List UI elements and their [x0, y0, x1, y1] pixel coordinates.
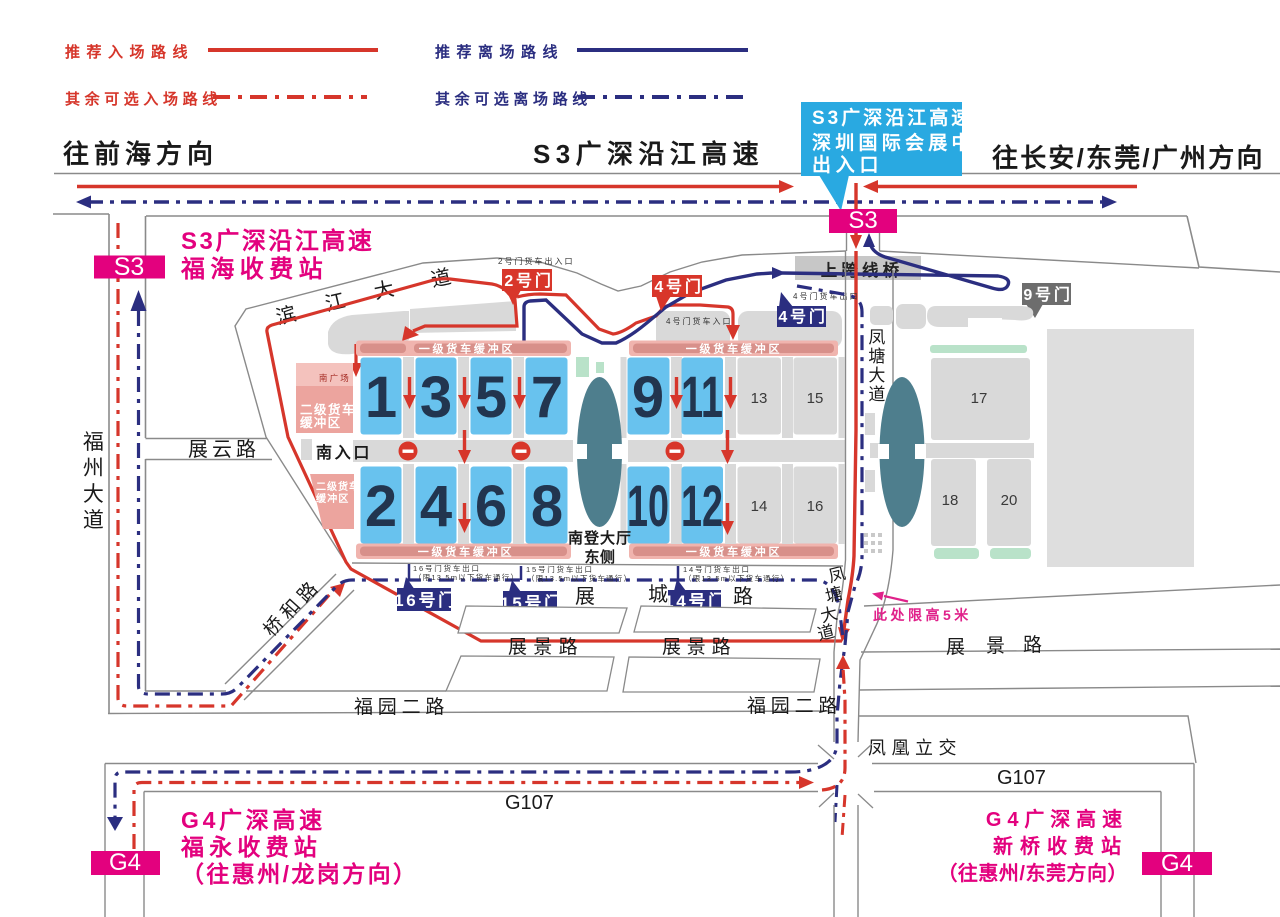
svg-text:凤凰立交: 凤凰立交 [868, 738, 962, 758]
svg-text:G107: G107 [997, 767, 1046, 789]
svg-text:缓冲区: 缓冲区 [300, 415, 341, 430]
svg-text:塘: 塘 [868, 347, 889, 366]
svg-text:G107: G107 [505, 792, 554, 814]
svg-text:路: 路 [733, 585, 758, 608]
svg-text:其余可选入场路线: 其余可选入场路线 [65, 90, 222, 108]
svg-text:（往惠州/东莞方向）: （往惠州/东莞方向） [937, 861, 1128, 885]
svg-text:东侧: 东侧 [584, 548, 615, 566]
svg-text:展景路: 展景路 [508, 636, 584, 658]
svg-text:（往惠州/龙岗方向）: （往惠州/龙岗方向） [181, 861, 418, 887]
svg-text:11: 11 [681, 365, 723, 430]
svg-text:展: 展 [575, 586, 600, 608]
svg-text:5: 5 [475, 365, 507, 430]
svg-text:一级货车缓冲区: 一级货车缓冲区 [419, 342, 516, 356]
svg-text:景: 景 [986, 636, 1010, 657]
svg-text:展景路: 展景路 [662, 636, 736, 658]
svg-text:出入口: 出入口 [812, 153, 883, 176]
svg-text:2: 2 [365, 474, 397, 539]
svg-text:S3: S3 [114, 253, 145, 281]
svg-text:4号门货车出口: 4号门货车出口 [793, 291, 859, 301]
svg-text:其余可选离场路线: 其余可选离场路线 [435, 90, 592, 108]
svg-text:往前海方向: 往前海方向 [63, 139, 218, 169]
svg-text:6: 6 [475, 474, 507, 539]
svg-text:4: 4 [420, 474, 452, 539]
svg-text:一级货车缓冲区: 一级货车缓冲区 [686, 342, 783, 356]
svg-text:G4广深高速: G4广深高速 [181, 807, 326, 833]
svg-text:S3: S3 [848, 207, 877, 234]
svg-text:8: 8 [531, 474, 563, 539]
svg-text:2号门货车出入口: 2号门货车出入口 [498, 256, 574, 266]
svg-text:15: 15 [807, 390, 824, 407]
svg-text:往长安/东莞/广州方向: 往长安/东莞/广州方向 [992, 143, 1265, 173]
svg-text:2号门: 2号门 [504, 271, 553, 290]
svg-text:20: 20 [1001, 492, 1018, 509]
svg-text:凤: 凤 [868, 328, 889, 347]
svg-text:福海收费站: 福海收费站 [180, 255, 328, 283]
svg-text:（限13.5m以下货车通行）: （限13.5m以下货车通行） [684, 573, 789, 583]
svg-text:南登大厅: 南登大厅 [568, 529, 632, 547]
svg-text:道: 道 [83, 509, 109, 532]
svg-text:12: 12 [681, 474, 723, 539]
svg-text:G4: G4 [109, 849, 141, 876]
svg-text:州: 州 [83, 457, 109, 480]
svg-text:推荐入场路线: 推荐入场路线 [65, 43, 194, 61]
svg-text:S3广深沿江高速: S3广深沿江高速 [812, 106, 973, 129]
svg-text:上跨线桥: 上跨线桥 [821, 260, 903, 280]
svg-text:9: 9 [632, 365, 664, 430]
svg-text:南广场: 南广场 [319, 373, 351, 383]
svg-text:18: 18 [942, 492, 959, 509]
svg-text:南入口: 南入口 [316, 443, 372, 462]
svg-text:大: 大 [83, 483, 109, 506]
svg-text:16: 16 [807, 498, 824, 515]
svg-text:17: 17 [971, 390, 988, 407]
svg-text:（限13.5m以下货车通行）: （限13.5m以下货车通行） [414, 572, 519, 582]
svg-text:展: 展 [946, 637, 970, 658]
svg-text:S3广深沿江高速: S3广深沿江高速 [181, 227, 374, 255]
svg-text:4号门货车入口: 4号门货车入口 [666, 316, 732, 326]
svg-text:福园二路: 福园二路 [354, 696, 449, 718]
svg-text:（限13.5m以下货车通行）: （限13.5m以下货车通行） [527, 573, 632, 583]
svg-text:二级货车: 二级货车 [300, 402, 356, 417]
svg-text:4号门: 4号门 [654, 277, 703, 296]
svg-text:展云路: 展云路 [188, 438, 260, 461]
svg-text:深圳国际会展中心: 深圳国际会展中心 [812, 131, 998, 154]
svg-text:10: 10 [627, 474, 669, 539]
svg-text:3: 3 [420, 365, 452, 430]
svg-text:新桥收费站: 新桥收费站 [993, 834, 1128, 858]
svg-text:7: 7 [531, 365, 563, 430]
svg-text:G4: G4 [1161, 850, 1193, 877]
svg-text:1: 1 [365, 365, 397, 430]
svg-text:大: 大 [868, 366, 889, 385]
svg-text:缓冲区: 缓冲区 [315, 492, 350, 505]
svg-text:9号门: 9号门 [1023, 285, 1072, 304]
svg-text:16号门: 16号门 [394, 590, 458, 610]
svg-text:此处限高5米: 此处限高5米 [873, 607, 972, 623]
svg-text:推荐离场路线: 推荐离场路线 [435, 43, 564, 61]
svg-text:S3广深沿江高速: S3广深沿江高速 [533, 139, 764, 169]
svg-text:14号门货车出口: 14号门货车出口 [683, 564, 751, 574]
svg-text:路: 路 [1023, 634, 1047, 656]
svg-text:福: 福 [83, 431, 109, 454]
svg-text:14: 14 [751, 498, 768, 515]
svg-text:城: 城 [648, 583, 673, 606]
svg-text:4号门: 4号门 [778, 307, 827, 326]
svg-text:福园二路: 福园二路 [747, 695, 842, 717]
svg-text:一级货车缓冲区: 一级货车缓冲区 [418, 545, 515, 559]
svg-text:福永收费站: 福永收费站 [180, 834, 322, 860]
svg-text:一级货车缓冲区: 一级货车缓冲区 [686, 545, 783, 559]
svg-text:G4广深高速: G4广深高速 [986, 807, 1128, 831]
svg-text:二级货车: 二级货车 [316, 480, 360, 493]
svg-text:15号门货车出口: 15号门货车出口 [526, 564, 594, 574]
svg-text:16号门货车出口: 16号门货车出口 [413, 563, 481, 573]
svg-text:13: 13 [751, 390, 768, 407]
